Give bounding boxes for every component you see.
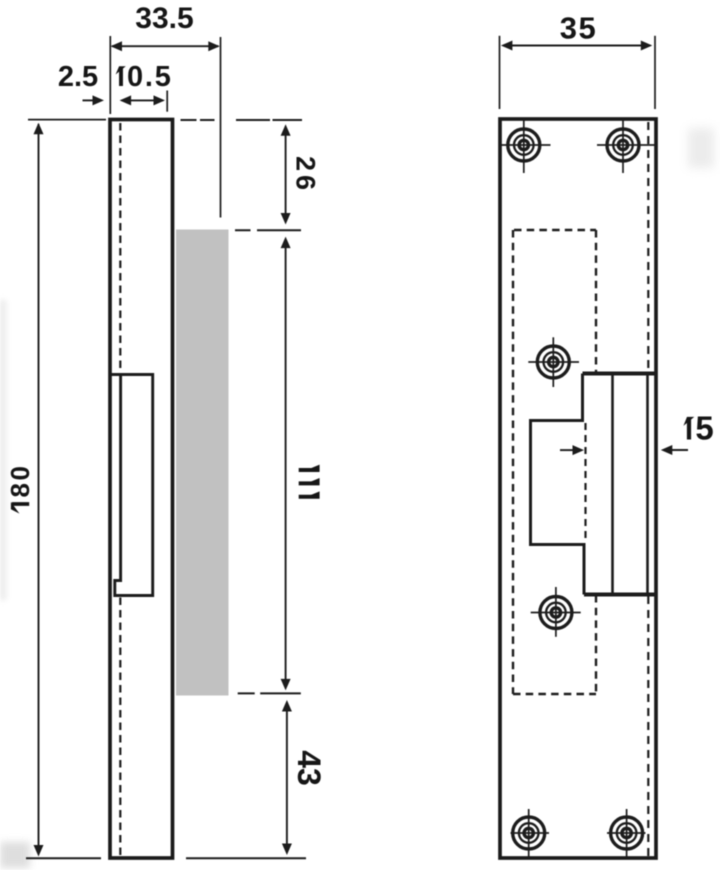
svg-text:80: 80 <box>5 464 35 498</box>
svg-text:2.5: 2.5 <box>58 61 98 93</box>
svg-text:35: 35 <box>560 11 597 46</box>
svg-text:43: 43 <box>291 750 327 786</box>
svg-text:0.5: 0.5 <box>127 61 173 93</box>
svg-text:33.5: 33.5 <box>135 2 193 35</box>
svg-text:26: 26 <box>290 156 320 194</box>
svg-text:5: 5 <box>695 410 713 447</box>
